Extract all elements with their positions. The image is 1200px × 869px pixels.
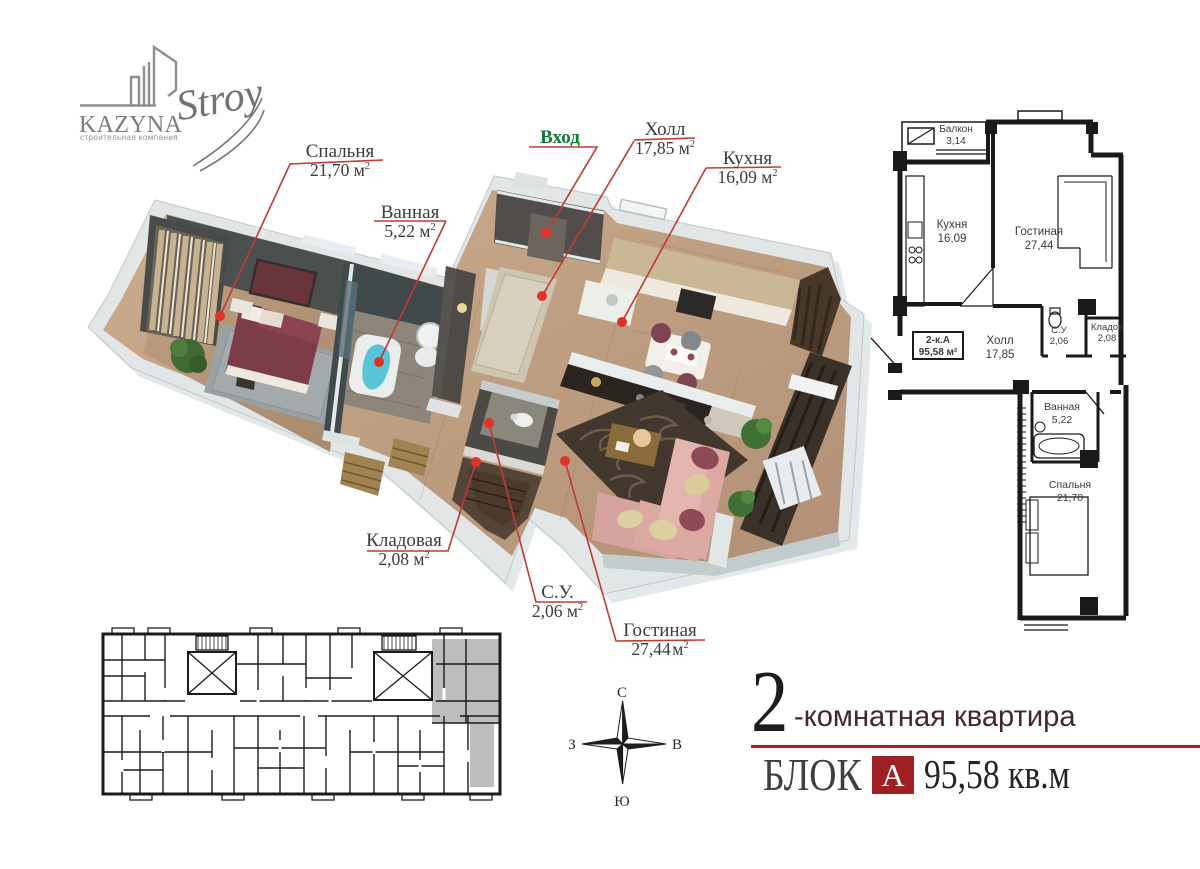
svg-text:Ю: Ю: [614, 794, 629, 810]
svg-text:З: З: [568, 737, 576, 753]
svg-text:С: С: [617, 685, 627, 701]
svg-text:В: В: [672, 737, 682, 753]
